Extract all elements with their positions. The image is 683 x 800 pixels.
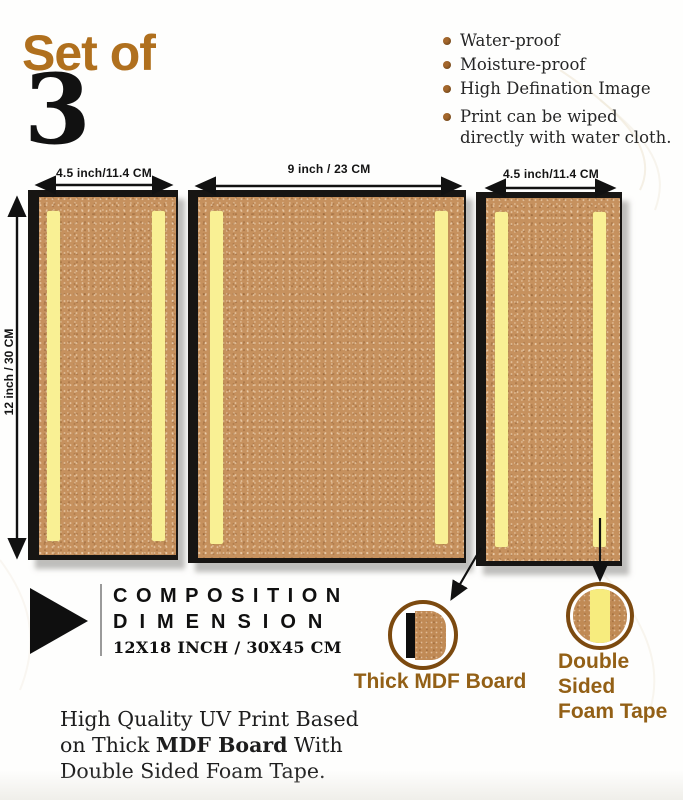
board-face [39, 197, 176, 555]
composition-title: COMPOSITION [113, 585, 349, 608]
footer-line2-bold: MDF Board [156, 733, 288, 757]
board-face [198, 197, 464, 558]
foam-tape-zoom-circle [566, 582, 634, 650]
board-cross-section [415, 611, 446, 660]
triangle-icon [30, 588, 88, 654]
foam-tape-callout-label: Double Sided Foam Tape [558, 650, 683, 724]
foam-tape-strip [47, 211, 60, 541]
mdf-board-middle [188, 190, 466, 563]
foam-tape-strip [152, 211, 165, 541]
foam-tape-strip [495, 212, 508, 547]
dimension-label-left-board: 4.5 inch/11.4 CM [56, 166, 152, 180]
bullet-icon [443, 85, 451, 93]
dimension-label-right-board: 4.5 inch/11.4 CM [503, 167, 599, 181]
footer-line2-pre: on Thick [60, 733, 156, 757]
bottom-shadow [0, 770, 683, 800]
mdf-board-right [476, 192, 622, 566]
mdf-board-left [28, 190, 178, 560]
feature-label: Water-proof [460, 30, 560, 51]
board-face [486, 198, 620, 561]
features-list: Water-proof Moisture-proof High Definati… [443, 30, 673, 151]
list-item: Moisture-proof [443, 54, 673, 75]
feature-label: Print can be wiped directly with water c… [460, 106, 673, 148]
foam-tape-label-line1: Double Sided [558, 650, 683, 700]
feature-label: High Defination Image [460, 78, 651, 99]
product-infographic: Set of 3 Water-proof Moisture-proof High… [0, 0, 683, 800]
bullet-icon [443, 37, 451, 45]
title-count: 3 [24, 62, 91, 158]
feature-label: Moisture-proof [460, 54, 585, 75]
footer-line2: on Thick MDF Board With [60, 732, 359, 758]
foam-tape-strip [435, 211, 448, 544]
bullet-icon [443, 113, 451, 121]
board-edge-swatch [406, 613, 415, 658]
mdf-board-callout-label: Thick MDF Board [345, 670, 535, 695]
list-item: Print can be wiped directly with water c… [443, 106, 673, 148]
list-item: High Defination Image [443, 78, 673, 99]
foam-tape-strip [593, 212, 606, 547]
tape-strip-swatch [590, 589, 610, 643]
foam-tape-strip [210, 211, 223, 544]
dimension-label-middle-board: 9 inch / 23 CM [288, 162, 371, 176]
footer-line1: High Quality UV Print Based [60, 706, 359, 732]
divider [100, 584, 102, 656]
dimension-label-height: 12 inch / 30 CM [2, 317, 16, 427]
composition-size: 12X18 INCH / 30X45 CM [113, 638, 349, 657]
footer-line2-post: With [288, 733, 343, 757]
tape-cross-section [573, 589, 627, 643]
dimension-title: DIMENSION [113, 611, 349, 634]
mdf-board-zoom-circle [388, 600, 458, 670]
list-item: Water-proof [443, 30, 673, 51]
foam-tape-label-line2: Foam Tape [558, 700, 683, 725]
composition-block: COMPOSITION DIMENSION 12X18 INCH / 30X45… [113, 585, 349, 657]
bullet-icon [443, 61, 451, 69]
